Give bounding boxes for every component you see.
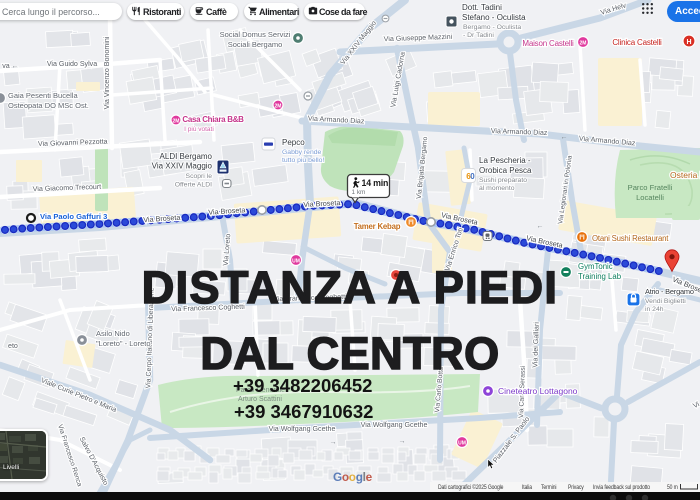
svg-text:La Pescheria -: La Pescheria - [479, 156, 531, 165]
svg-text:Cineteatro Lottagono: Cineteatro Lottagono [498, 386, 578, 396]
svg-text:Orobica Pesca: Orobica Pesca [479, 166, 532, 175]
svg-text:- Dr Tadini: - Dr Tadini [463, 32, 494, 39]
svg-text:Via XXIV Maggio: Via XXIV Maggio [152, 162, 213, 171]
svg-text:va: va [2, 62, 10, 70]
svg-text:Otani Sushi Restaurant: Otani Sushi Restaurant [592, 234, 669, 243]
svg-text:Maison Castelli: Maison Castelli [522, 39, 574, 48]
svg-text:Via Vincenzo Bonomini: Via Vincenzo Bonomini [103, 36, 111, 109]
svg-text:Offerte ALDI: Offerte ALDI [175, 182, 212, 189]
svg-text:tutto più bello!: tutto più bello! [282, 157, 324, 164]
svg-text:Osteopata DO MSc Ost.: Osteopata DO MSc Ost. [8, 101, 89, 110]
svg-text:ALDI Bergamo: ALDI Bergamo [160, 152, 213, 161]
svg-text:Sushi preparato: Sushi preparato [479, 177, 527, 184]
svg-text:←: ← [12, 63, 19, 70]
svg-text:Casa Chiara B&B: Casa Chiara B&B [182, 115, 244, 124]
svg-text:2M: 2M [275, 104, 282, 110]
svg-text:14 min: 14 min [362, 178, 389, 188]
svg-text:al momento: al momento [479, 185, 515, 192]
svg-text:←: ← [537, 223, 544, 230]
svg-text:Tamer Kebap: Tamer Kebap [354, 222, 401, 231]
svg-text:Locatelli: Locatelli [636, 193, 664, 202]
svg-text:Dott. Tadini: Dott. Tadini [462, 3, 502, 12]
svg-text:Parco Fratelli: Parco Fratelli [628, 183, 673, 192]
svg-text:Gaia Pesenti Bucella: Gaia Pesenti Bucella [8, 91, 78, 100]
svg-text:Scopri le: Scopri le [186, 173, 213, 180]
svg-text:Pepco: Pepco [282, 138, 305, 147]
svg-text:Osteria R: Osteria R [670, 170, 700, 180]
svg-text:UM: UM [458, 441, 466, 447]
svg-text:→: → [330, 439, 337, 446]
svg-text:Bergamo - Oculista: Bergamo - Oculista [463, 24, 521, 31]
svg-text:Sociali Bergamo: Sociali Bergamo [228, 40, 283, 49]
svg-text:0: 0 [470, 172, 475, 181]
svg-text:→: → [399, 438, 406, 445]
svg-text:Stefano - Oculista: Stefano - Oculista [462, 13, 526, 22]
svg-text:←: ← [561, 134, 568, 141]
svg-text:2M: 2M [173, 119, 180, 125]
svg-text:I più votati: I più votati [184, 126, 214, 133]
svg-text:1 km: 1 km [352, 189, 366, 196]
svg-text:2M: 2M [580, 41, 587, 47]
svg-text:H: H [686, 39, 691, 46]
svg-text:Social Domus Servizi: Social Domus Servizi [220, 30, 291, 39]
svg-text:Via Guido Sylva: Via Guido Sylva [47, 60, 97, 68]
svg-text:Via Paolo Gaffuri 3: Via Paolo Gaffuri 3 [40, 212, 107, 221]
svg-text:Gabby rende: Gabby rende [282, 149, 322, 156]
svg-text:Via Wolfgang Gcethe: Via Wolfgang Gcethe [269, 425, 336, 433]
svg-text:Clinica Castelli: Clinica Castelli [612, 38, 662, 47]
